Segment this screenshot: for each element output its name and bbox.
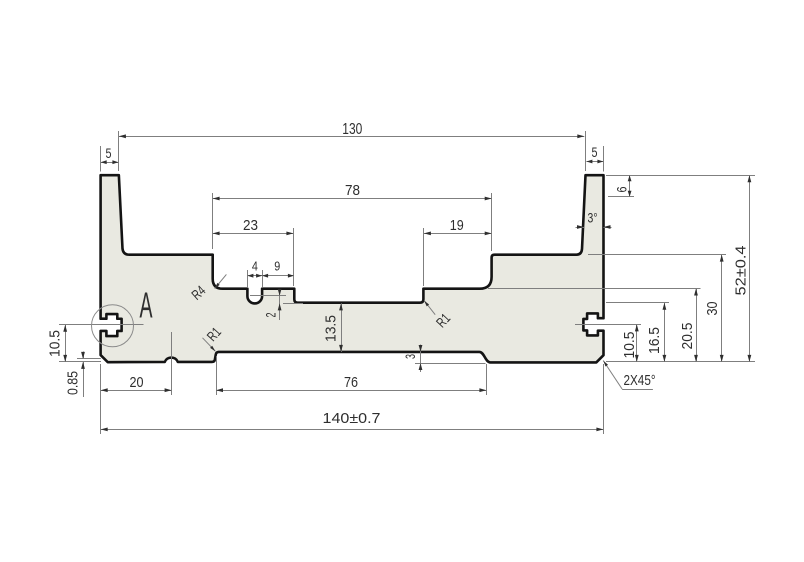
svg-text:16.5: 16.5 — [646, 327, 663, 354]
svg-text:2X45°: 2X45° — [624, 372, 656, 389]
svg-text:3°: 3° — [588, 210, 598, 226]
svg-text:19: 19 — [450, 217, 464, 234]
svg-text:3: 3 — [402, 354, 418, 359]
svg-text:10.5: 10.5 — [621, 332, 638, 359]
svg-text:20: 20 — [130, 374, 144, 391]
svg-text:10.5: 10.5 — [46, 330, 63, 357]
svg-text:6: 6 — [614, 186, 630, 192]
svg-text:5: 5 — [106, 145, 112, 161]
svg-text:20.5: 20.5 — [679, 323, 696, 350]
svg-text:76: 76 — [344, 374, 358, 391]
svg-text:140±0.7: 140±0.7 — [323, 410, 381, 427]
svg-text:78: 78 — [345, 182, 360, 199]
svg-text:30: 30 — [704, 302, 721, 316]
svg-text:A: A — [140, 285, 153, 326]
svg-text:4: 4 — [252, 259, 258, 274]
svg-text:9: 9 — [274, 259, 280, 274]
svg-text:23: 23 — [243, 217, 258, 234]
svg-text:130: 130 — [342, 121, 362, 138]
svg-text:52±0.4: 52±0.4 — [732, 246, 749, 296]
svg-text:5: 5 — [592, 144, 598, 160]
svg-text:0.85: 0.85 — [64, 371, 81, 395]
svg-text:13.5: 13.5 — [323, 315, 340, 342]
svg-text:2: 2 — [263, 312, 279, 317]
